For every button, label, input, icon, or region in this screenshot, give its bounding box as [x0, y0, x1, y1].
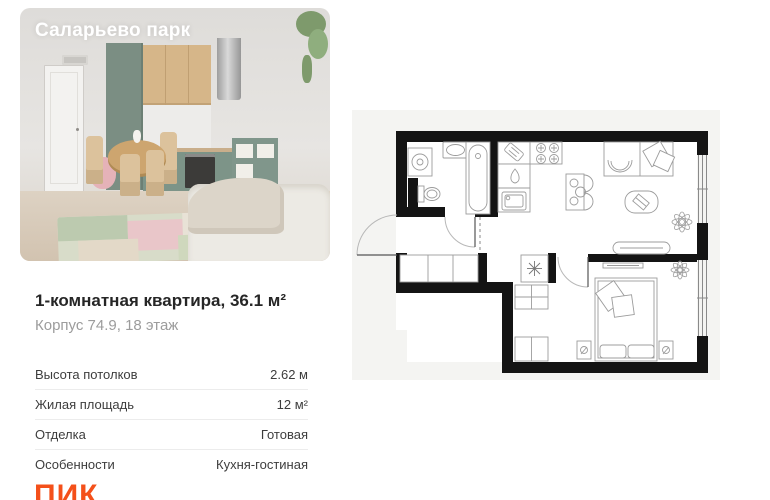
pouf	[625, 191, 658, 213]
pik-logo: ПИК	[34, 481, 98, 500]
listing-photo: Саларьево парк	[20, 8, 330, 261]
photo-blanket	[188, 178, 284, 234]
spec-row-features: Особенности Кухня-гостиная	[35, 450, 308, 479]
dining-table	[566, 174, 586, 210]
spec-label: Высота потолков	[35, 368, 138, 382]
photo-backsplash	[143, 105, 211, 148]
bathtub	[466, 142, 490, 214]
photo-hanging-plant	[278, 11, 330, 85]
wardrobe-bottom	[515, 337, 548, 361]
building-floor-subline: Корпус 74.9, 18 этаж	[35, 317, 178, 334]
listing-page: { "card": { "project_title": "Саларьево …	[0, 0, 770, 500]
nightstand-left	[577, 341, 591, 359]
toilet	[418, 186, 440, 202]
spec-row-finish: Отделка Готовая	[35, 420, 308, 450]
spec-value: 2.62 м	[270, 368, 308, 382]
bathroom-sink	[443, 142, 468, 158]
spec-label: Жилая площадь	[35, 398, 134, 412]
nightstand-right	[659, 341, 673, 359]
spec-label: Особенности	[35, 458, 115, 472]
photo-chair	[86, 136, 103, 184]
kitchen-sink-square	[502, 192, 526, 210]
spec-value: Кухня-гостиная	[216, 458, 308, 472]
photo-chair	[120, 154, 140, 196]
washing-machine	[408, 148, 432, 176]
photo-vase	[133, 130, 141, 143]
tv-stand	[613, 242, 670, 254]
photo-kitchen-hood	[217, 38, 241, 100]
bedroom-tv	[603, 263, 643, 268]
spec-value: 12 м²	[277, 398, 308, 412]
wardrobe-top	[515, 285, 548, 309]
photo-upper-cabinets	[143, 45, 211, 105]
snowflake-icon	[527, 261, 542, 276]
specs-table: Высота потолков 2.62 м Жилая площадь 12 …	[35, 360, 308, 479]
spec-row-ceiling-height: Высота потолков 2.62 м	[35, 360, 308, 390]
photo-air-vent	[62, 55, 88, 65]
bed	[595, 278, 657, 361]
photo-entrance-door	[44, 65, 84, 193]
spec-label: Отделка	[35, 428, 86, 442]
floor-plan	[352, 110, 720, 380]
spec-row-living-area: Жилая площадь 12 м²	[35, 390, 308, 420]
spec-value: Готовая	[261, 428, 308, 442]
project-title: Саларьево парк	[35, 20, 190, 42]
apartment-headline: 1-комнатная квартира, 36.1 м²	[35, 291, 286, 311]
hall-closet	[400, 255, 478, 282]
photo-chair	[146, 150, 164, 196]
